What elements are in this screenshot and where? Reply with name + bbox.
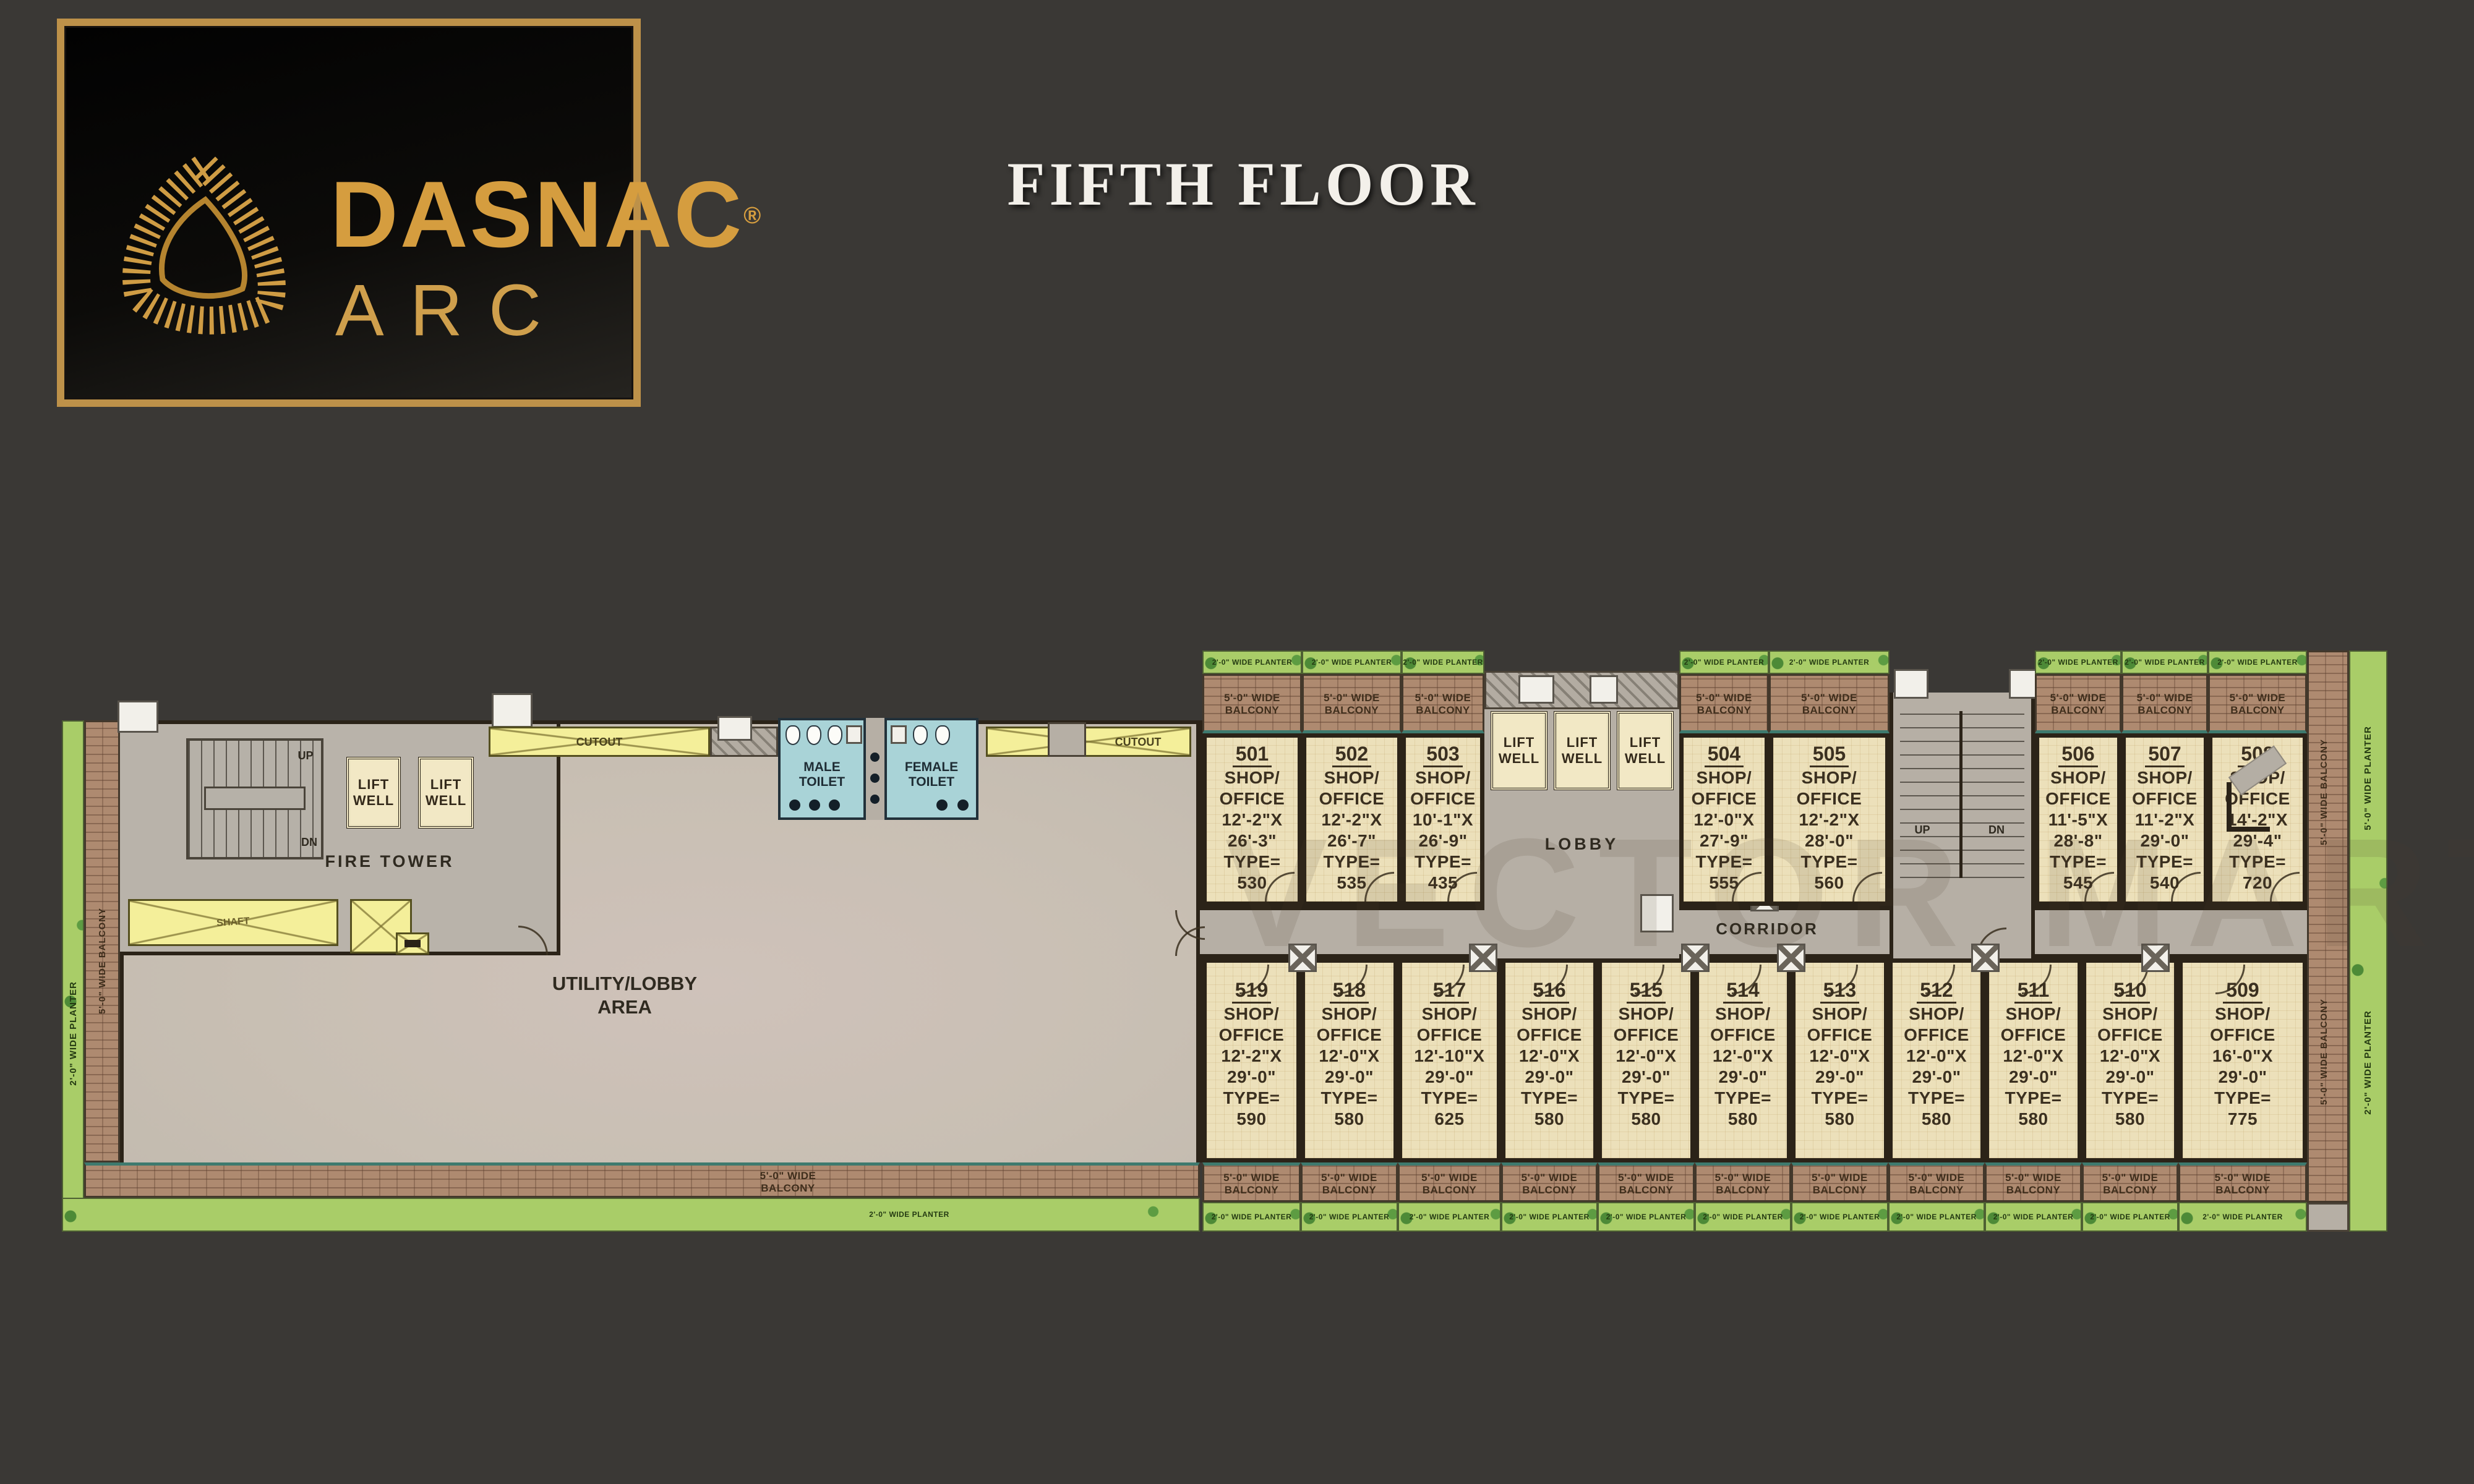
unit-bottom-planter: 2'-0" WIDE PLANTER (1791, 1202, 1888, 1232)
unit-use-line2: OFFICE (2183, 1025, 2303, 1046)
lift-well-west: LIFTWELL (418, 757, 474, 829)
unit-use-line1: SHOP/ (1207, 767, 1298, 788)
unit-type-label: TYPE= (2086, 1088, 2174, 1109)
unit-planter-label: 2'-0" WIDE PLANTER (1680, 652, 1768, 673)
service-xbox-icon (1469, 944, 1497, 972)
floor-plan: 2'-0" WIDE PLANTER5'-0" WIDE BALCONYUTIL… (0, 0, 2474, 1484)
unit-planter-label: 2'-0" WIDE PLANTER (2083, 1203, 2177, 1230)
left-balcony-strip: 5'-0" WIDE BALCONY (84, 720, 120, 1162)
urinal-icon (785, 725, 800, 745)
unit-dim-depth: 26'-7" (1306, 830, 1397, 851)
unit-top-planter: 2'-0" WIDE PLANTER (1302, 650, 1402, 674)
right-balcony-label: 5'-0" WIDE BALCONY (2319, 739, 2329, 845)
unit-bottom-planter: 2'-0" WIDE PLANTER (1398, 1202, 1501, 1232)
unit-bottom-balcony: 5'-0" WIDEBALCONY (1202, 1162, 1301, 1202)
unit-number: 506 (2058, 743, 2097, 767)
unit-balcony-label: 5'-0" WIDEBALCONY (1503, 1166, 1596, 1196)
unit-use-line2: OFFICE (2126, 788, 2204, 809)
unit-balcony-label: 5'-0" WIDEBALCONY (2084, 1166, 2177, 1196)
utility-bottom-balcony: 5'-0" WIDEBALCONY (84, 1162, 1200, 1198)
right-planter-label-upper: 5'-0" WIDE PLANTER (2363, 726, 2373, 830)
unit-number: 505 (1810, 743, 1849, 767)
service-xbox-icon (1288, 944, 1317, 972)
unit-use-line1: SHOP/ (1402, 1004, 1497, 1025)
lift-well-label: WELL (421, 793, 471, 809)
unit-balcony-label: 5'-0" WIDEBALCONY (1793, 1166, 1886, 1196)
cutout-strip-west: CUTOUT (489, 727, 710, 757)
unit-dim-depth: 29'-0" (2183, 1067, 2303, 1088)
lift-well-core: LIFTWELL (1491, 711, 1547, 790)
cutout-strip-east: CUTOUT (986, 727, 1191, 757)
utility-label-line2: AREA (597, 996, 652, 1018)
lobby-text: LOBBY (1545, 835, 1619, 853)
stair-landing (204, 787, 306, 810)
unit-type-label: TYPE= (2183, 1088, 2303, 1109)
unit-dim-depth: 29'-0" (1305, 1067, 1393, 1088)
unit-planter-label: 2'-0" WIDE PLANTER (1302, 1203, 1397, 1230)
unit-balcony-label: 5'-0" WIDEBALCONY (1771, 676, 1888, 717)
unit-planter-label: 2'-0" WIDE PLANTER (1986, 1203, 2081, 1230)
unit-dim-width: 12'-0"X (1505, 1046, 1593, 1067)
left-balcony-label: 5'-0" WIDE BALCONY (97, 908, 108, 1014)
unit-top-planter: 2'-0" WIDE PLANTER (1402, 650, 1484, 674)
unit-top-balcony: 5'-0" WIDEBALCONY (1202, 674, 1302, 733)
unit-type-area: 580 (1893, 1109, 1980, 1130)
unit-room: 509 SHOP/ OFFICE 16'-0"X 29'-0" TYPE= 77… (2178, 958, 2307, 1162)
unit-type-label: TYPE= (1773, 851, 1885, 872)
stair-up-label: UP (287, 749, 324, 763)
unit-top-balcony: 5'-0" WIDEBALCONY (1679, 674, 1769, 733)
unit-use-line1: SHOP/ (2039, 767, 2117, 788)
male-toilet-label1: MALE (781, 760, 863, 775)
unit-number: 502 (1332, 743, 1371, 767)
unit-type-label: TYPE= (1505, 1088, 1593, 1109)
unit-top-balcony: 5'-0" WIDEBALCONY (1769, 674, 1890, 733)
utility-balcony-label: 5'-0" WIDEBALCONY (717, 1170, 859, 1195)
stall-icon (846, 725, 862, 744)
unit-dim-width: 12'-0"X (1602, 1046, 1690, 1067)
unit-use-line1: SHOP/ (1773, 767, 1885, 788)
unit-bottom-balcony: 5'-0" WIDEBALCONY (1695, 1162, 1791, 1202)
unit-dim-width: 12'-2"X (1207, 1046, 1296, 1067)
unit-dim-depth: 29'-0" (1505, 1067, 1593, 1088)
unit-number: 503 (1423, 743, 1462, 767)
service-xbox-icon (1971, 944, 2000, 972)
right-planter-strip: 5'-0" WIDE PLANTER 2'-0" WIDE PLANTER (2349, 650, 2387, 1232)
unit-number: 507 (2145, 743, 2184, 767)
right-planter-label-lower: 2'-0" WIDE PLANTER (2363, 1010, 2373, 1115)
unit-type-label: TYPE= (2212, 851, 2303, 872)
unit-dim-depth: 29'-0" (1796, 1067, 1884, 1088)
unit-type-label: TYPE= (1796, 1088, 1884, 1109)
unit-top-balcony: 5'-0" WIDEBALCONY (1402, 674, 1484, 733)
unit-dim-depth: 26'-3" (1207, 830, 1298, 851)
lift-well-label: LIFT (1556, 735, 1608, 751)
unit-type-area: 580 (2086, 1109, 2174, 1130)
female-toilet: FEMALETOILET (884, 718, 978, 820)
sink-dot-icon (870, 795, 880, 804)
unit-top-balcony: 5'-0" WIDEBALCONY (1302, 674, 1402, 733)
unit-dim-width: 10'-1"X (1406, 809, 1480, 830)
unit-dim-width: 12'-0"X (1684, 809, 1765, 830)
unit-dim-width: 12'-2"X (1207, 809, 1298, 830)
vent-box-icon (118, 701, 158, 733)
unit-bottom-planter: 2'-0" WIDE PLANTER (1202, 1202, 1301, 1232)
unit-dim-depth: 29'-0" (1207, 1067, 1296, 1088)
unit-bottom-balcony: 5'-0" WIDEBALCONY (1791, 1162, 1888, 1202)
female-toilet-label1: FEMALE (887, 760, 976, 775)
dn-text: DN (301, 836, 317, 848)
unit-top-planter: 2'-0" WIDE PLANTER (2208, 650, 2307, 674)
unit-planter-label: 2'-0" WIDE PLANTER (1890, 1203, 1984, 1230)
unit-use-line1: SHOP/ (1305, 1004, 1393, 1025)
unit-type-label: TYPE= (1306, 851, 1397, 872)
vent-box-icon (1518, 675, 1554, 704)
right-balcony-label: 5'-0" WIDE BALCONY (2319, 999, 2329, 1105)
unit-number: 501 (1233, 743, 1272, 767)
unit-use-line2: OFFICE (1207, 788, 1298, 809)
service-xbox-icon (2141, 944, 2170, 972)
unit-bottom-balcony: 5'-0" WIDEBALCONY (2178, 1162, 2307, 1202)
wc-dot-icon (809, 800, 820, 811)
unit-use-line2: OFFICE (1505, 1025, 1593, 1046)
unit-use-line2: OFFICE (1305, 1025, 1393, 1046)
lift-well-label: WELL (1556, 751, 1608, 767)
unit-type-area: 580 (1602, 1109, 1690, 1130)
unit-use-line2: OFFICE (1893, 1025, 1980, 1046)
wc-dot-icon (936, 800, 948, 811)
unit-planter-label: 2'-0" WIDE PLANTER (2180, 1203, 2306, 1230)
wc-fixture-icon (935, 725, 950, 745)
page-background: { "page": { "title": "FIFTH FLOOR" }, "l… (0, 0, 2474, 1484)
lift-well-west: LIFTWELL (346, 757, 401, 829)
unit-planter-label: 2'-0" WIDE PLANTER (1303, 652, 1400, 673)
unit-type-label: TYPE= (1893, 1088, 1980, 1109)
wall-mark-508 (2227, 782, 2232, 832)
unit-dim-width: 12'-2"X (1306, 809, 1397, 830)
utility-area-label: UTILITY/LOBBYAREA (495, 972, 755, 1021)
unit-use-line1: SHOP/ (2183, 1004, 2303, 1025)
unit-dim-depth: 29'-0" (1602, 1067, 1690, 1088)
lobby-top-hatch (1484, 671, 1679, 709)
unit-bottom-planter: 2'-0" WIDE PLANTER (1695, 1202, 1791, 1232)
unit-balcony-label: 5'-0" WIDEBALCONY (1403, 676, 1483, 717)
unit-type-label: TYPE= (1305, 1088, 1393, 1109)
unit-planter-label: 2'-0" WIDE PLANTER (1204, 652, 1301, 673)
unit-top-planter: 2'-0" WIDE PLANTER (2121, 650, 2208, 674)
unit-balcony-label: 5'-0" WIDEBALCONY (1697, 1166, 1789, 1196)
unit-dim-depth: 27'-9" (1684, 830, 1765, 851)
unit-bottom-planter: 2'-0" WIDE PLANTER (1598, 1202, 1695, 1232)
stair-east-up: UP (1904, 824, 1941, 837)
unit-use-line1: SHOP/ (1989, 1004, 2078, 1025)
unit-bottom-planter: 2'-0" WIDE PLANTER (1985, 1202, 2082, 1232)
top-edge-post (1048, 722, 1086, 757)
unit-use-line1: SHOP/ (1406, 767, 1480, 788)
up-text: UP (297, 749, 313, 762)
service-marker-box (396, 932, 429, 955)
unit-type-label: TYPE= (1989, 1088, 2078, 1109)
unit-use-line2: OFFICE (1406, 788, 1480, 809)
unit-dim-depth: 29'-0" (1402, 1067, 1497, 1088)
unit-bottom-planter: 2'-0" WIDE PLANTER (2082, 1202, 2178, 1232)
unit-balcony-label: 5'-0" WIDEBALCONY (1599, 1166, 1693, 1196)
unit-bottom-balcony: 5'-0" WIDEBALCONY (1501, 1162, 1598, 1202)
urinal-icon (828, 725, 842, 745)
unit-balcony-label: 5'-0" WIDEBALCONY (2037, 676, 2120, 717)
shaft-label: SHAFT (129, 893, 338, 951)
female-toilet-label2: TOILET (887, 775, 976, 790)
unit-use-line1: SHOP/ (1684, 767, 1765, 788)
unit-planter-label: 2'-0" WIDE PLANTER (1403, 652, 1483, 673)
vent-box-icon (1894, 669, 1928, 699)
vent-box-icon (492, 693, 533, 728)
unit-bottom-planter: 2'-0" WIDE PLANTER (1888, 1202, 1985, 1232)
fire-tower-text: FIRE TOWER (325, 852, 454, 871)
dn-text: DN (1988, 824, 2005, 836)
unit-use-line2: OFFICE (2039, 788, 2117, 809)
unit-dim-depth: 29'-0" (2086, 1067, 2174, 1088)
unit-top-balcony: 5'-0" WIDEBALCONY (2035, 674, 2121, 733)
lift-well-core: LIFTWELL (1554, 711, 1611, 790)
corridor-text: CORRIDOR (1716, 919, 1818, 938)
unit-type-label: TYPE= (1207, 851, 1298, 872)
unit-use-line2: OFFICE (1773, 788, 1885, 809)
unit-bottom-balcony: 5'-0" WIDEBALCONY (1888, 1162, 1985, 1202)
unit-planter-label: 2'-0" WIDE PLANTER (1502, 1203, 1596, 1230)
unit-dim-width: 12'-0"X (1699, 1046, 1787, 1067)
unit-use-line1: SHOP/ (1893, 1004, 1980, 1025)
lift-well-label: LIFT (349, 777, 398, 793)
utility-bottom-planter: 2'-0" WIDE PLANTER (62, 1198, 1200, 1232)
unit-type-area: 580 (1989, 1109, 2078, 1130)
lift-well-label: WELL (1619, 751, 1671, 767)
wc-dot-icon (829, 800, 840, 811)
unit-use-line2: OFFICE (1306, 788, 1397, 809)
sink-dot-icon (870, 774, 880, 783)
unit-use-line2: OFFICE (1602, 1025, 1690, 1046)
unit-planter-label: 2'-0" WIDE PLANTER (1792, 1203, 1887, 1230)
up-text: UP (1914, 824, 1930, 836)
stair-dn-label: DN (291, 836, 328, 850)
unit-use-line1: SHOP/ (1699, 1004, 1787, 1025)
lobby-label: LOBBY (1503, 835, 1661, 853)
unit-dim-width: 12'-0"X (1305, 1046, 1393, 1067)
toilet-divider (866, 718, 884, 820)
unit-top-planter: 2'-0" WIDE PLANTER (1202, 650, 1302, 674)
stair-east-divider (1959, 711, 1963, 878)
unit-planter-label: 2'-0" WIDE PLANTER (2036, 652, 2120, 673)
unit-use-line1: SHOP/ (1796, 1004, 1884, 1025)
male-toilet-label2: TOILET (781, 775, 863, 790)
unit-dim-depth: 29'-0" (1699, 1067, 1787, 1088)
right-bottom-stub (2307, 1203, 2349, 1232)
unit-type-area: 625 (1402, 1109, 1497, 1130)
stair-east-dn: DN (1978, 824, 2015, 837)
vent-box-icon (717, 716, 752, 741)
unit-type-area: 580 (1796, 1109, 1884, 1130)
unit-use-line2: OFFICE (1402, 1025, 1497, 1046)
unit-bottom-balcony: 5'-0" WIDEBALCONY (1301, 1162, 1398, 1202)
unit-use-line2: OFFICE (1207, 1025, 1296, 1046)
unit-type-label: TYPE= (1684, 851, 1765, 872)
unit-dim-depth: 29'-0" (1893, 1067, 1980, 1088)
right-balcony-strip: 5'-0" WIDE BALCONY 5'-0" WIDE BALCONY (2307, 650, 2349, 1203)
unit-dim-width: 12'-0"X (1989, 1046, 2078, 1067)
unit-type-area: 580 (1305, 1109, 1393, 1130)
unit-dim-depth: 29'-4" (2212, 830, 2303, 851)
cutout-label: CUTOUT (490, 728, 708, 756)
urinal-icon (807, 725, 821, 745)
unit-number: 504 (1705, 743, 1744, 767)
unit-type-label: TYPE= (1207, 1088, 1296, 1109)
unit-balcony-label: 5'-0" WIDEBALCONY (1987, 1166, 2080, 1196)
unit-bottom-balcony: 5'-0" WIDEBALCONY (1985, 1162, 2082, 1202)
unit-type-label: TYPE= (1699, 1088, 1787, 1109)
utility-label-line1: UTILITY/LOBBY (552, 973, 697, 994)
unit-dim-width: 12'-0"X (1796, 1046, 1884, 1067)
unit-use-line1: SHOP/ (1306, 767, 1397, 788)
unit-use-line1: SHOP/ (1505, 1004, 1593, 1025)
unit-balcony-label: 5'-0" WIDEBALCONY (1204, 676, 1300, 717)
corridor-label: CORRIDOR (1687, 919, 1847, 940)
unit-balcony-label: 5'-0" WIDEBALCONY (1204, 1166, 1299, 1196)
unit-type-label: TYPE= (2126, 851, 2204, 872)
unit-bottom-planter: 2'-0" WIDE PLANTER (1301, 1202, 1398, 1232)
service-xbox-icon (1681, 944, 1710, 972)
unit-type-label: TYPE= (1602, 1088, 1690, 1109)
unit-dim-width: 12'-0"X (2086, 1046, 2174, 1067)
wc-dot-icon (957, 800, 969, 811)
stall-icon (891, 725, 907, 744)
fire-tower-label: FIRE TOWER (297, 852, 482, 871)
unit-planter-label: 2'-0" WIDE PLANTER (1399, 1203, 1500, 1230)
unit-planter-label: 2'-0" WIDE PLANTER (2209, 652, 2306, 673)
shaft-strip: SHAFT (128, 899, 338, 946)
unit-balcony-label: 5'-0" WIDEBALCONY (1400, 1166, 1499, 1196)
unit-type-area: 580 (1505, 1109, 1593, 1130)
lift-well-label: WELL (349, 793, 398, 809)
cutout-label: CUTOUT (988, 728, 1189, 756)
unit-use-line2: OFFICE (2086, 1025, 2174, 1046)
marker-glyph (404, 940, 421, 947)
utility-planter-label: 2'-0" WIDE PLANTER (63, 1199, 1199, 1230)
wall-mark-508 (2227, 827, 2270, 832)
unit-planter-label: 2'-0" WIDE PLANTER (1204, 1203, 1299, 1230)
unit-dim-depth: 29'-0" (2126, 830, 2204, 851)
unit-type-area: 775 (2183, 1109, 2303, 1130)
male-toilet: MALETOILET (778, 718, 866, 820)
unit-type-area: 580 (1699, 1109, 1787, 1130)
unit-balcony-label: 5'-0" WIDEBALCONY (1303, 1166, 1396, 1196)
unit-balcony-label: 5'-0" WIDEBALCONY (2180, 1166, 2305, 1196)
vent-box-icon (1590, 675, 1618, 704)
unit-balcony-label: 5'-0" WIDEBALCONY (1681, 676, 1767, 717)
unit-dim-width: 12'-0"X (1893, 1046, 1980, 1067)
unit-dim-width: 11'-5"X (2039, 809, 2117, 830)
unit-bottom-planter: 2'-0" WIDE PLANTER (2178, 1202, 2307, 1232)
unit-balcony-label: 5'-0" WIDEBALCONY (1304, 676, 1400, 717)
unit-type-label: TYPE= (1402, 1088, 1497, 1109)
lift-well-label: LIFT (421, 777, 471, 793)
lift-well-label: WELL (1493, 751, 1545, 767)
unit-use-line1: SHOP/ (2086, 1004, 2174, 1025)
sink-dot-icon (870, 753, 880, 762)
unit-planter-label: 2'-0" WIDE PLANTER (2123, 652, 2207, 673)
unit-planter-label: 2'-0" WIDE PLANTER (1599, 1203, 1693, 1230)
unit-dim-depth: 29'-0" (1989, 1067, 2078, 1088)
unit-type-label: TYPE= (2039, 851, 2117, 872)
service-xbox-icon (1777, 944, 1805, 972)
unit-top-planter: 2'-0" WIDE PLANTER (1769, 650, 1890, 674)
unit-use-line2: OFFICE (1796, 1025, 1884, 1046)
unit-use-line1: SHOP/ (1602, 1004, 1690, 1025)
unit-dim-width: 12'-2"X (1773, 809, 1885, 830)
unit-top-planter: 2'-0" WIDE PLANTER (1679, 650, 1769, 674)
unit-dim-width: 12'-10"X (1402, 1046, 1497, 1067)
wc-dot-icon (789, 800, 800, 811)
lift-well-core: LIFTWELL (1617, 711, 1674, 790)
wc-fixture-icon (913, 725, 928, 745)
unit-planter-label: 2'-0" WIDE PLANTER (1770, 652, 1888, 673)
lobby-door-box (1640, 894, 1674, 932)
unit-type-area: 590 (1207, 1109, 1296, 1130)
unit-balcony-label: 5'-0" WIDEBALCONY (1890, 1166, 1983, 1196)
unit-use-line2: OFFICE (2212, 788, 2303, 809)
unit-dim-depth: 26'-9" (1406, 830, 1480, 851)
lift-well-label: LIFT (1493, 735, 1545, 751)
lift-well-label: LIFT (1619, 735, 1671, 751)
unit-planter-label: 2'-0" WIDE PLANTER (1696, 1203, 1790, 1230)
unit-balcony-label: 5'-0" WIDEBALCONY (2123, 676, 2206, 717)
left-planter-strip: 2'-0" WIDE PLANTER (62, 720, 84, 1232)
unit-top-balcony: 5'-0" WIDEBALCONY (2208, 674, 2307, 733)
unit-balcony-label: 5'-0" WIDEBALCONY (2210, 676, 2305, 717)
unit-use-line2: OFFICE (1684, 788, 1765, 809)
unit-dim-width: 16'-0"X (2183, 1046, 2303, 1067)
unit-use-line1: SHOP/ (1207, 1004, 1296, 1025)
unit-type-label: TYPE= (1406, 851, 1480, 872)
unit-bottom-balcony: 5'-0" WIDEBALCONY (2082, 1162, 2178, 1202)
unit-dim-depth: 28'-0" (1773, 830, 1885, 851)
unit-use-line1: SHOP/ (2126, 767, 2204, 788)
unit-use-line2: OFFICE (1989, 1025, 2078, 1046)
unit-dim-width: 11'-2"X (2126, 809, 2204, 830)
unit-top-planter: 2'-0" WIDE PLANTER (2035, 650, 2121, 674)
unit-bottom-balcony: 5'-0" WIDEBALCONY (1598, 1162, 1695, 1202)
unit-top-balcony: 5'-0" WIDEBALCONY (2121, 674, 2208, 733)
unit-use-line2: OFFICE (1699, 1025, 1787, 1046)
unit-bottom-planter: 2'-0" WIDE PLANTER (1501, 1202, 1598, 1232)
unit-bottom-balcony: 5'-0" WIDEBALCONY (1398, 1162, 1501, 1202)
left-planter-label: 2'-0" WIDE PLANTER (68, 981, 79, 1086)
unit-dim-depth: 28'-8" (2039, 830, 2117, 851)
